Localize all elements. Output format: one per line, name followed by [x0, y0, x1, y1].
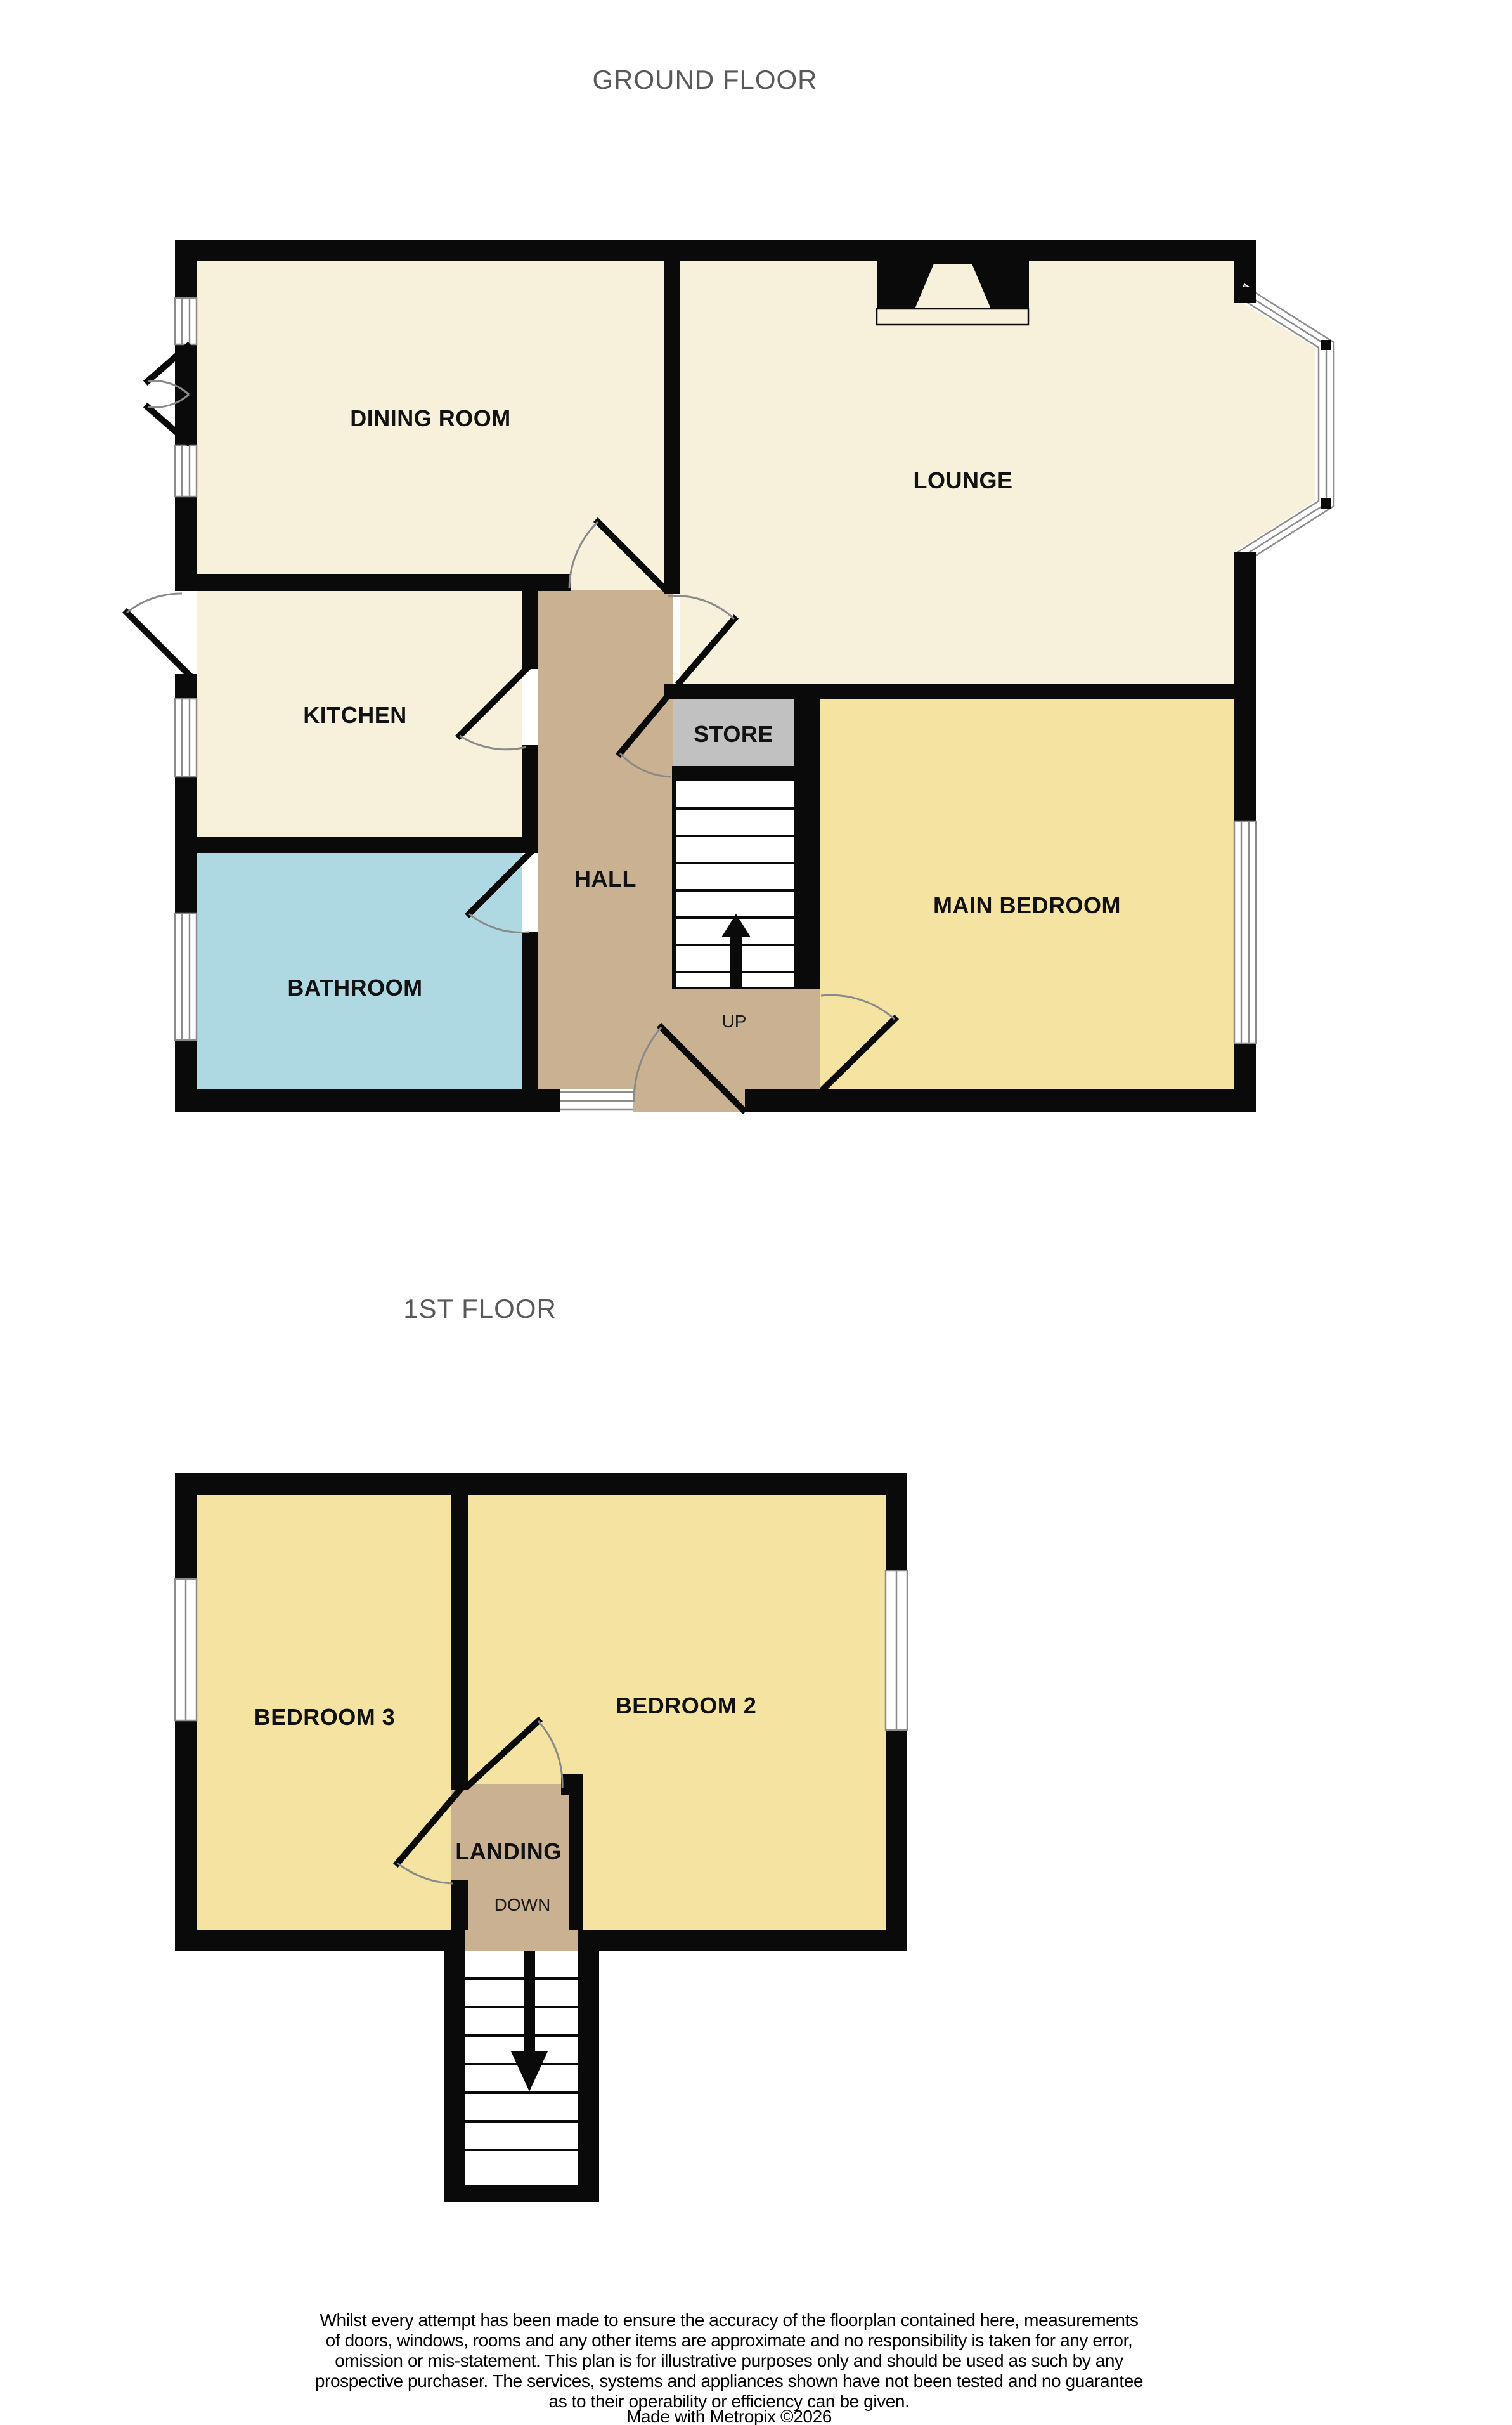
bedroom3-label: BEDROOM 3: [254, 1704, 396, 1730]
kitchen-window: [175, 699, 197, 777]
fireplace-hearth: [877, 309, 1028, 325]
ground-floor-title: GROUND FLOOR: [592, 65, 817, 94]
disclaimer-line: Whilst every attempt has been made to en…: [320, 2310, 1138, 2330]
floorplan-canvas: GROUND FLOOR 1ST FLOOR: [0, 0, 1512, 2425]
credit-line: Made with Metropix ©2026: [626, 2407, 832, 2425]
disclaimer-line: omission or mis-statement. This plan is …: [335, 2351, 1123, 2370]
bathroom-label: BATHROOM: [287, 975, 422, 1001]
landing-label: LANDING: [455, 1838, 562, 1864]
lounge-label: LOUNGE: [913, 467, 1012, 493]
kitchen-label: KITCHEN: [303, 702, 407, 728]
disclaimer-line: prospective purchaser. The services, sys…: [315, 2371, 1143, 2391]
up-label: UP: [722, 1011, 747, 1031]
first-floor-plan: BEDROOM 3 BEDROOM 2 LANDING DOWN: [175, 1473, 907, 2202]
floorplan-page: GROUND FLOOR 1ST FLOOR: [0, 0, 1512, 2425]
bathroom-floor: [197, 853, 522, 1089]
dining-window-lower: [175, 445, 197, 497]
bedroom3-window: [175, 1579, 197, 1720]
bedroom2-window: [886, 1571, 907, 1730]
ground-floor-plan: DINING ROOM LOUNGE KITCHEN STORE HALL MA…: [127, 240, 1334, 1112]
first-floor-title: 1ST FLOOR: [403, 1294, 557, 1323]
hall-floor: [538, 590, 673, 1089]
hall-label: HALL: [574, 866, 636, 892]
dining-room-label: DINING ROOM: [350, 405, 511, 431]
stairwell-gap-floor: [465, 1930, 578, 1951]
main-bedroom-window: [1234, 821, 1256, 1043]
main-bedroom-label: MAIN BEDROOM: [933, 892, 1121, 918]
hall-floor-lower: [673, 989, 820, 1089]
fireplace: [877, 261, 1029, 325]
bathroom-window: [175, 913, 197, 1040]
front-door-threshold: [560, 1089, 633, 1112]
dining-window-upper: [175, 298, 197, 344]
disclaimer: Whilst every attempt has been made to en…: [315, 2310, 1143, 2425]
kitchen-back-door: [127, 594, 188, 674]
down-label: DOWN: [494, 1895, 551, 1915]
disclaimer-line: of doors, windows, rooms and any other i…: [326, 2331, 1133, 2350]
bedroom2-label: BEDROOM 2: [616, 1693, 757, 1719]
store-label: STORE: [694, 721, 773, 747]
